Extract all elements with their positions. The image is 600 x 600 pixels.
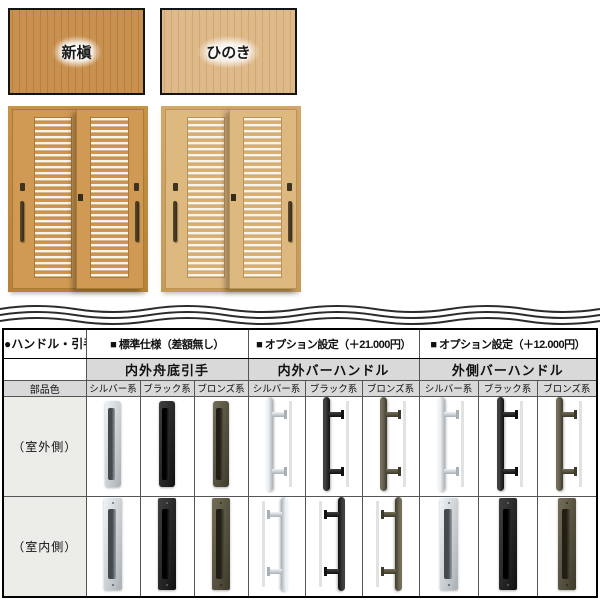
bar-handle-post — [386, 412, 398, 417]
finish-column-header: ブロンズ系 — [194, 380, 248, 396]
finish-column-header: ブラック系 — [140, 380, 194, 396]
wood-swatch-label: 新槇 — [51, 35, 101, 68]
table-corner-label: ●ハンドル・引手 — [3, 329, 86, 358]
flush-handle-black-image — [159, 401, 175, 487]
door-front-panel — [229, 109, 297, 289]
bar-handle-post — [384, 512, 396, 517]
bar-handle-post — [444, 469, 456, 474]
flush-handle-bronze-image — [213, 401, 229, 487]
flush-long-handle-black-image — [158, 498, 176, 590]
door-pull-handle — [288, 201, 292, 242]
handle-image-cell — [194, 496, 248, 597]
handle-type-header: 外側バーハンドル — [419, 358, 597, 380]
handle-image-cell — [248, 396, 305, 496]
bar-handle-post — [329, 412, 341, 417]
option-group-header: ■ 標準仕様（差額無し） — [86, 329, 248, 358]
door-latch — [20, 183, 25, 191]
louver-grille — [243, 117, 282, 278]
bar-handle-post — [272, 469, 284, 474]
handle-image-cell — [140, 496, 194, 597]
bar-handle-post — [272, 412, 284, 417]
option-group-header: ■ オプション設定（＋21.000円） — [248, 329, 419, 358]
handle-image-cell — [478, 396, 537, 496]
door-center-latch — [78, 194, 83, 201]
handle-image-cell — [194, 396, 248, 496]
bar-mirrored-handle-silver-image — [259, 497, 295, 591]
bar-handle-post — [503, 412, 515, 417]
door-image-hinoki — [161, 106, 301, 292]
door-edge — [346, 401, 349, 487]
door-edge — [289, 401, 292, 487]
bar-handle-post — [270, 569, 282, 574]
outside-handles-row: （室外側） — [3, 396, 597, 496]
bar-handle-post — [562, 412, 574, 417]
handle-image-cell — [362, 496, 419, 597]
wood-swatch-label: ひのき — [196, 35, 261, 68]
flush-long-handle-bronze-image — [212, 498, 230, 590]
door-pull-handle — [20, 201, 24, 242]
handle-option-table: ●ハンドル・引手 ■ 標準仕様（差額無し）■ オプション設定（＋21.000円）… — [2, 328, 598, 598]
handle-image-cell — [362, 396, 419, 496]
catalog-page: 新槇 ひのき — [0, 0, 600, 600]
bar-handle-silver-image — [431, 397, 467, 491]
part-color-label: 部品色 — [3, 380, 86, 396]
handle-image-cell — [419, 396, 478, 496]
handle-image-cell — [419, 496, 478, 597]
bar-handle-post — [327, 569, 339, 574]
bar-handle-black-image — [316, 397, 352, 491]
handle-image-cell — [305, 396, 362, 496]
finish-column-header: シルバー系 — [419, 380, 478, 396]
door-pull-handle — [173, 201, 177, 242]
door-latch — [287, 183, 292, 191]
door-back-panel — [12, 109, 79, 289]
handle-image-cell — [86, 396, 140, 496]
louver-grille — [34, 117, 72, 278]
handle-type-header: 内外舟底引手 — [86, 358, 248, 380]
handle-image-cell — [86, 496, 140, 597]
door-pull-handle — [135, 201, 139, 242]
door-edge — [319, 501, 322, 587]
finish-header-row: 部品色 シルバー系ブラック系ブロンズ系シルバー系ブラック系ブロンズ系シルバー系ブ… — [3, 380, 597, 396]
handle-image-cell — [140, 396, 194, 496]
bar-handle-silver-image — [259, 397, 295, 491]
bar-handle-post — [444, 412, 456, 417]
finish-column-header: シルバー系 — [248, 380, 305, 396]
bar-handle-post — [327, 512, 339, 517]
finish-column-header: シルバー系 — [86, 380, 140, 396]
flush-long-handle-bronze-image — [558, 498, 576, 590]
door-latch — [134, 183, 139, 191]
handle-type-header: 内外バーハンドル — [248, 358, 419, 380]
bar-handle-post — [503, 469, 515, 474]
door-back-panel — [165, 109, 232, 289]
bar-handle-bronze-image — [549, 397, 585, 491]
handle-image-cell — [248, 496, 305, 597]
finish-column-header: ブロンズ系 — [537, 380, 597, 396]
flush-long-handle-silver-image — [440, 498, 458, 590]
bar-handle-post — [329, 469, 341, 474]
wood-swatch-hinoki: ひのき — [160, 8, 297, 95]
door-edge — [520, 401, 523, 487]
handle-image-cell — [537, 496, 597, 597]
inside-handles-row: （室内側） — [3, 496, 597, 597]
door-edge — [461, 401, 464, 487]
bar-handle-post — [562, 469, 574, 474]
finish-column-header: ブラック系 — [478, 380, 537, 396]
door-image-row — [8, 106, 301, 292]
spec-header-row: ●ハンドル・引手 ■ 標準仕様（差額無し）■ オプション設定（＋21.000円）… — [3, 329, 597, 358]
bar-handle-bronze-image — [373, 397, 409, 491]
wood-swatch-row: 新槇 ひのき — [8, 8, 297, 95]
door-edge — [262, 501, 265, 587]
handle-type-row: 内外舟底引手内外バーハンドル外側バーハンドル — [3, 358, 597, 380]
handle-image-cell — [478, 496, 537, 597]
wavy-divider — [0, 301, 600, 327]
empty-cell — [3, 358, 86, 380]
flush-long-handle-black-image — [499, 498, 517, 590]
finish-column-header: ブラック系 — [305, 380, 362, 396]
door-front-panel — [76, 109, 144, 289]
door-edge — [579, 401, 582, 487]
bar-handle-post — [386, 469, 398, 474]
option-group-header: ■ オプション設定（＋12.000円） — [419, 329, 597, 358]
handle-image-cell — [305, 496, 362, 597]
bar-handle-black-image — [490, 397, 526, 491]
door-latch — [173, 183, 178, 191]
row-label-outside: （室外側） — [3, 396, 86, 496]
finish-column-header: ブロンズ系 — [362, 380, 419, 396]
louver-grille — [187, 117, 225, 278]
bar-mirrored-handle-bronze-image — [373, 497, 409, 591]
bar-handle-post — [270, 512, 282, 517]
flush-long-handle-silver-image — [104, 498, 122, 590]
door-edge — [403, 401, 406, 487]
handle-image-cell — [537, 396, 597, 496]
wood-swatch-shinmaki: 新槇 — [8, 8, 145, 95]
louver-grille — [90, 117, 129, 278]
bar-mirrored-handle-black-image — [316, 497, 352, 591]
bar-handle-post — [384, 569, 396, 574]
door-edge — [376, 501, 379, 587]
flush-handle-silver-image — [105, 401, 121, 487]
door-center-latch — [231, 194, 236, 201]
door-image-shinmaki — [8, 106, 148, 292]
row-label-inside: （室内側） — [3, 496, 86, 597]
